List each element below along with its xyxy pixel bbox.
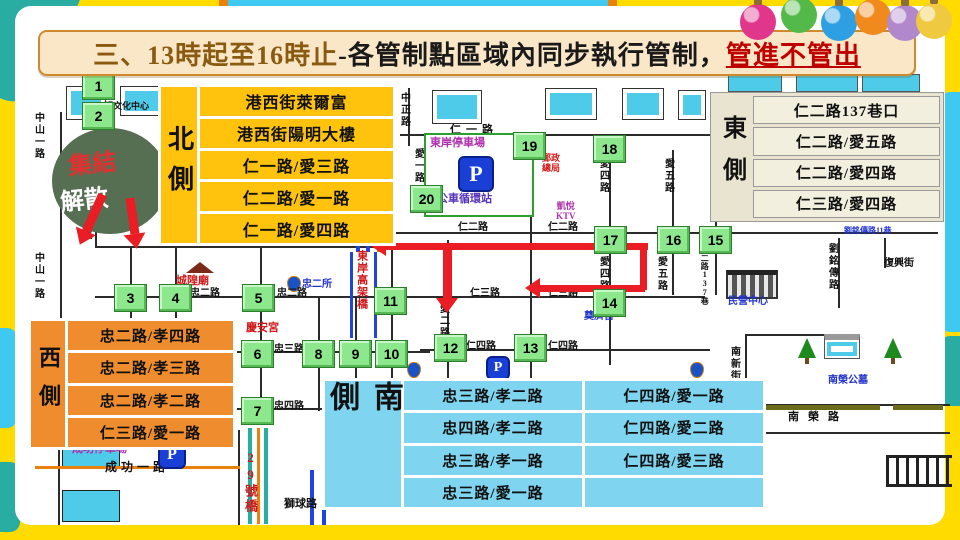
post-office-building-icon <box>726 270 778 299</box>
street-label: 南榮路 <box>788 411 848 424</box>
landmark-label: 公車循環站 <box>437 193 492 206</box>
control-point-7: 7 <box>241 397 274 425</box>
street-label: 仁四路 <box>548 341 578 353</box>
north-item: 仁一路/愛四路 <box>200 214 393 243</box>
street-label: 忠二路 <box>190 288 220 300</box>
ornament-icon <box>916 3 952 39</box>
street-label: 愛五路 <box>662 158 674 194</box>
south-item: 忠三路/孝一路 <box>404 446 582 475</box>
viaduct-line <box>350 252 353 338</box>
street-line <box>609 150 611 365</box>
street-label: 中山一路 <box>32 252 44 300</box>
west-side-box: 西側 忠二路/孝四路 忠二路/孝三路 忠二路/孝二路 仁三路/愛一路 <box>28 318 236 450</box>
north-side-box: 北側 港西街萊爾富 港西街陽明大樓 仁一路/愛三路 仁二路/愛一路 仁一路/愛四… <box>158 84 396 246</box>
control-point-14: 14 <box>593 289 626 317</box>
north-side-label: 北側 <box>161 87 197 243</box>
street-label: 愛四路 <box>597 158 609 194</box>
east-label-text: 東側 <box>715 115 750 199</box>
west-item: 仁三路/愛一路 <box>68 418 233 447</box>
street-label: 南新街 <box>728 346 740 382</box>
south-item: 忠三路/愛一路 <box>404 478 582 507</box>
slide-title: 三、13時起至16時止-各管制點區域內同步執行管制，管進不管出 <box>38 30 916 76</box>
north-item: 仁一路/愛三路 <box>200 151 393 180</box>
control-point-13: 13 <box>514 334 547 362</box>
control-point-4: 4 <box>159 284 192 312</box>
landmark-label: 凱悅 KTV <box>556 201 576 222</box>
building <box>545 88 597 120</box>
ornament-icon <box>821 5 857 41</box>
street-label: 仁四路 <box>466 341 496 353</box>
route-shaft <box>640 248 647 290</box>
control-point-1: 1 <box>82 72 115 100</box>
street-label: 復興街 <box>884 258 914 270</box>
road-accent <box>893 405 943 410</box>
building <box>862 74 920 92</box>
route-arrowhead-left <box>525 278 540 298</box>
street-label: 仁三路 <box>470 288 500 300</box>
assembly-dismiss-circle: 集結 解散 <box>52 128 168 234</box>
east-item: 仁二路/愛四路 <box>753 159 940 187</box>
east-side-label: 東側 <box>714 96 750 218</box>
west-item: 忠二路/孝二路 <box>68 386 233 415</box>
south-side-box: 南側 忠三路/孝二路 忠四路/孝二路 忠三路/孝一路 忠三路/愛一路 仁四路/愛… <box>322 378 766 510</box>
street-label: 中正路 <box>398 92 410 128</box>
temple-icon <box>186 262 214 273</box>
slide-root: 中山一路 中山一路 忠一路 忠一路 忠二路 忠二路 忠三路 忠四路 仁一路 仁二… <box>0 0 960 540</box>
control-point-8: 8 <box>302 340 335 368</box>
street-label: 獅球路 <box>284 498 317 511</box>
north-item: 港西街陽明大樓 <box>200 119 393 148</box>
west-item: 忠二路/孝三路 <box>68 353 233 382</box>
street-label: 忠三路 <box>274 344 304 356</box>
landmark-label: 民營中心 <box>728 296 768 308</box>
assembly-label: 集結 <box>66 142 117 182</box>
control-point-6: 6 <box>241 340 274 368</box>
south-label-text: 南側 <box>319 381 407 507</box>
east-item: 仁二路137巷口 <box>753 96 940 124</box>
south-item: 仁四路/愛一路 <box>585 381 763 410</box>
street-label: 愛一路 <box>412 148 424 184</box>
parking-icon: P <box>486 356 510 380</box>
south-item: 仁四路/愛三路 <box>585 446 763 475</box>
control-point-9: 9 <box>339 340 372 368</box>
west-item: 忠二路/孝四路 <box>68 321 233 350</box>
ornament-icon <box>740 4 776 40</box>
railroad-track <box>886 455 952 487</box>
title-body: -各管制點區域內同步執行管制， <box>338 35 726 72</box>
street-label: 忠四路 <box>274 401 304 413</box>
building <box>678 90 706 120</box>
control-point-12: 12 <box>434 334 467 362</box>
title-time-range: 三、13時起至16時止 <box>93 35 338 72</box>
parking-icon: P <box>458 156 494 192</box>
street-line <box>838 238 840 308</box>
east-item: 仁三路/愛四路 <box>753 190 940 218</box>
east-side-box: 東側 仁二路137巷口 仁二路/愛五路 仁二路/愛四路 仁三路/愛四路 <box>710 92 944 222</box>
street-line <box>760 432 950 434</box>
route-arrow-down <box>436 248 458 313</box>
street-label: 劉銘傳路11巷 <box>844 226 892 235</box>
street-line <box>238 430 240 525</box>
control-point-11: 11 <box>374 287 407 315</box>
south-item: 仁四路/愛二路 <box>585 413 763 442</box>
street-label: 仁二路 <box>458 222 488 234</box>
control-point-20: 20 <box>410 185 443 213</box>
building <box>728 74 782 92</box>
south-item-empty <box>585 478 763 507</box>
control-point-19: 19 <box>513 132 546 160</box>
south-side-label: 南側 <box>325 381 401 507</box>
street-label: 仁二路137巷 <box>700 246 709 305</box>
west-side-label: 西側 <box>31 321 65 447</box>
street-line <box>385 296 705 298</box>
south-item: 忠三路/孝二路 <box>404 381 582 410</box>
landmark-label: 南榮公墓 <box>828 375 868 387</box>
control-point-15: 15 <box>699 226 732 254</box>
tree-icon <box>884 338 902 358</box>
street-label: 仁二路 <box>548 222 578 234</box>
building <box>432 90 482 124</box>
north-label-text: 北側 <box>161 125 198 205</box>
cemetery-building-icon <box>824 334 860 359</box>
bridge-line <box>264 428 268 524</box>
landmark-label: 東岸停車場 <box>430 137 485 150</box>
east-item: 仁二路/愛五路 <box>753 127 940 155</box>
road-accent <box>765 405 880 410</box>
street-label: 愛五路 <box>655 256 667 292</box>
control-point-16: 16 <box>657 226 690 254</box>
west-label-text: 西側 <box>32 346 64 422</box>
street-label: 劉銘傳路 <box>826 243 838 291</box>
north-item: 港西街萊爾富 <box>200 87 393 116</box>
north-item: 仁二路/愛一路 <box>200 182 393 211</box>
street-label: 中山一路 <box>32 112 44 160</box>
street-label: 29號橋 <box>242 450 257 514</box>
south-item: 忠四路/孝二路 <box>404 413 582 442</box>
ornament-icon <box>855 0 891 35</box>
control-point-17: 17 <box>594 226 627 254</box>
control-point-3: 3 <box>114 284 147 312</box>
building <box>796 74 858 92</box>
landmark-label: 慶安宮 <box>246 322 279 335</box>
control-point-2: 2 <box>82 102 115 130</box>
building <box>622 88 664 120</box>
tree-icon <box>798 338 816 358</box>
street-label: 東岸高架橋 <box>355 250 368 310</box>
landmark-label: 忠二所 <box>302 279 332 291</box>
building <box>62 490 120 522</box>
control-point-18: 18 <box>593 135 626 163</box>
control-point-10: 10 <box>375 340 408 368</box>
control-point-5: 5 <box>242 284 275 312</box>
